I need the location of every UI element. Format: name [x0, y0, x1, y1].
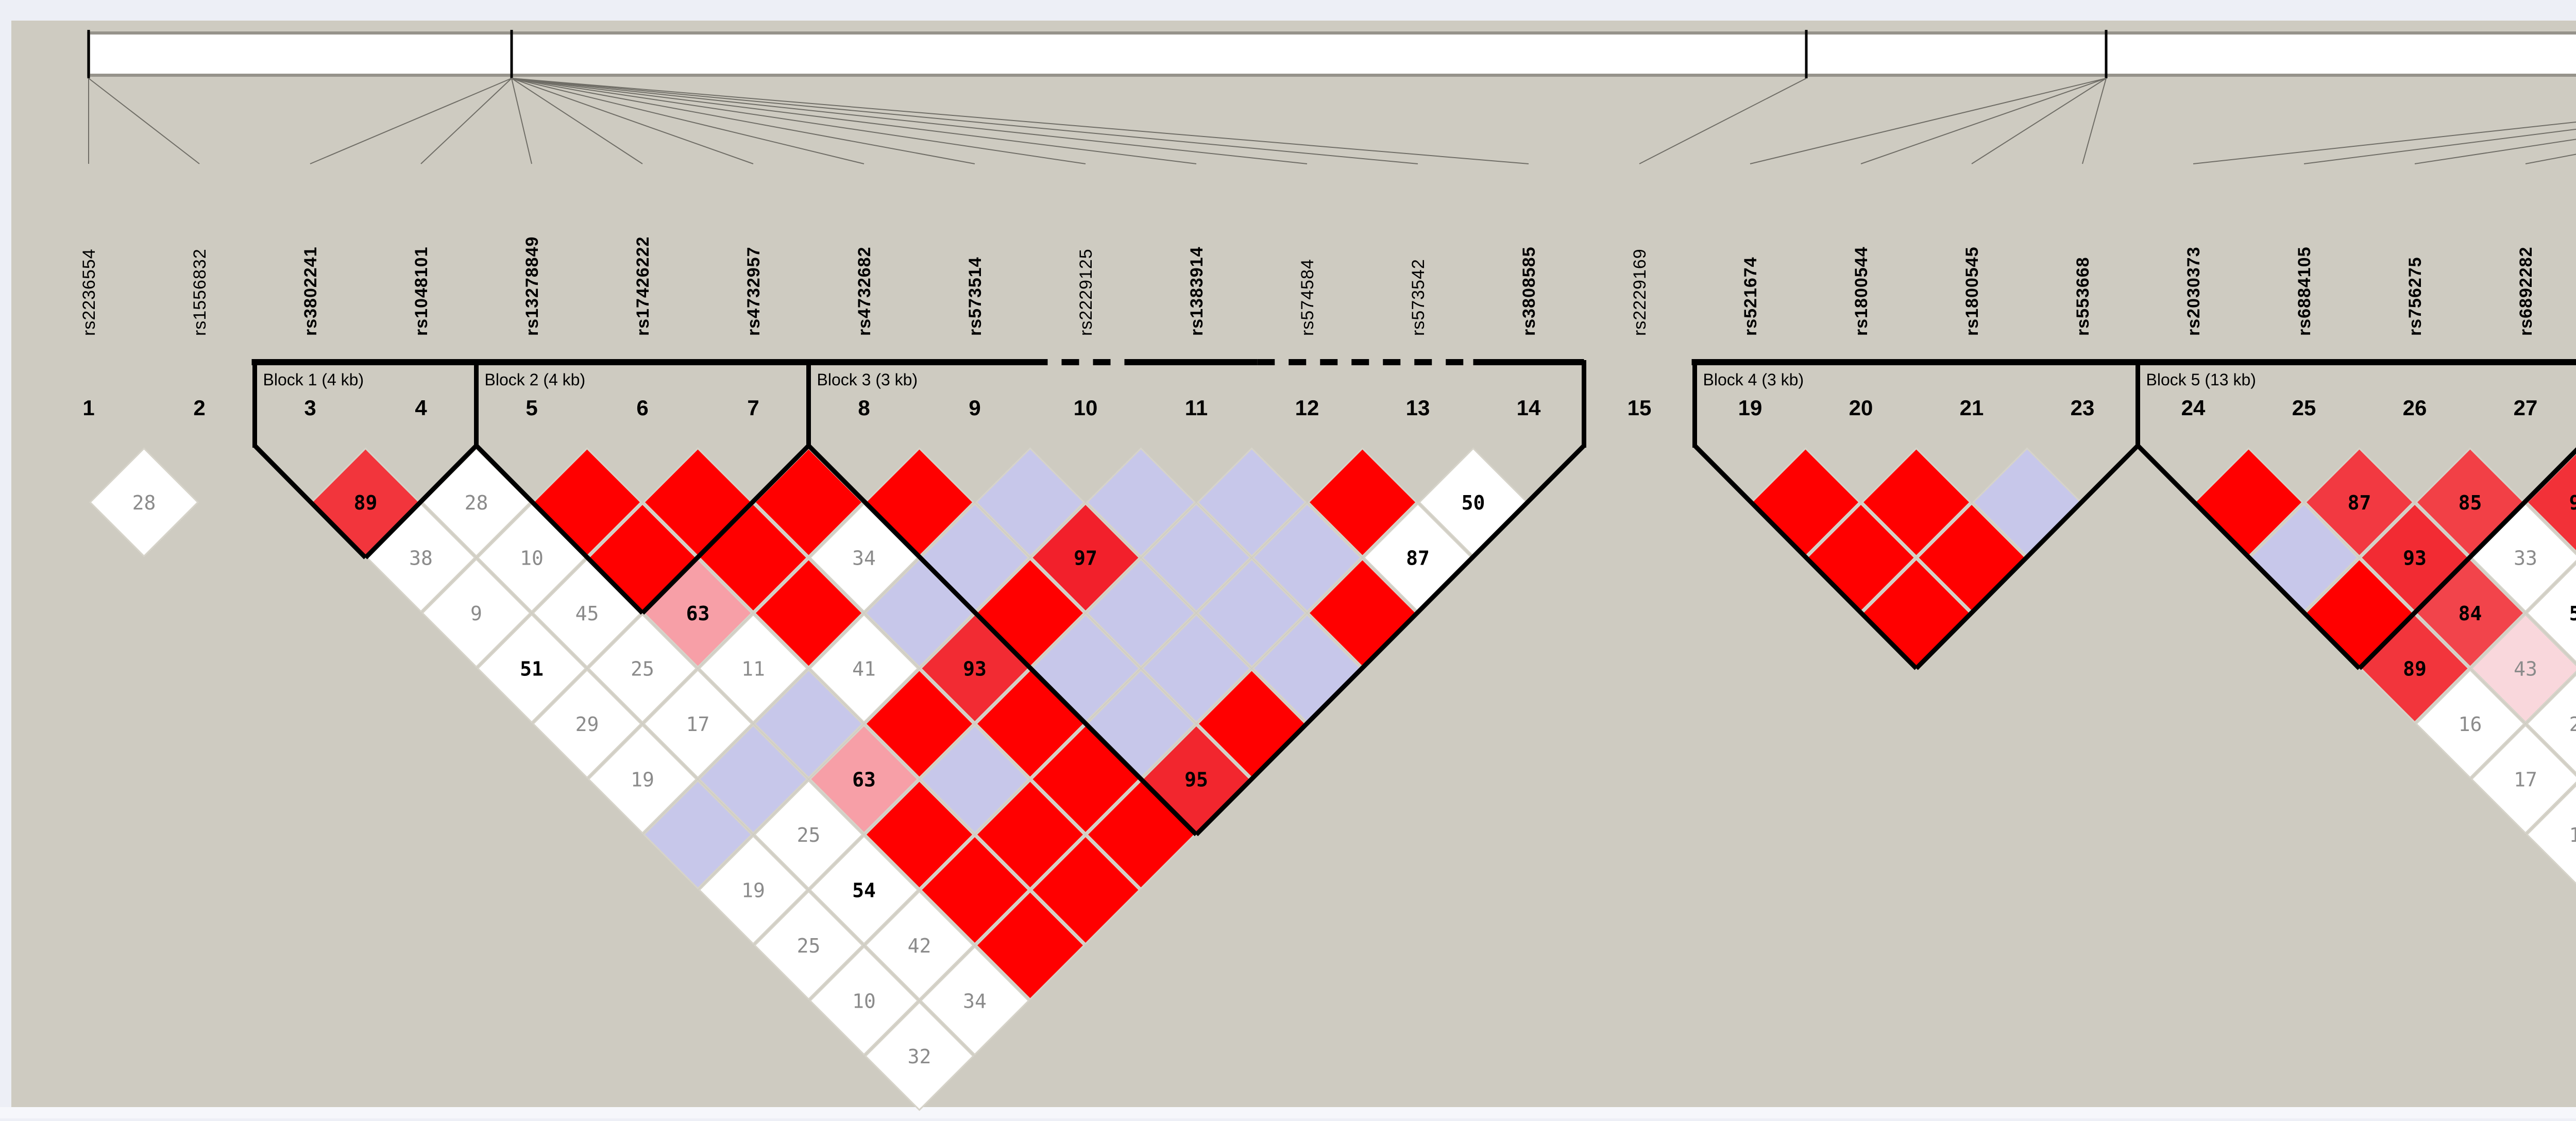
ld-cell-value: 16 [2459, 713, 2482, 736]
marker-number: 14 [1517, 396, 1541, 420]
ld-cell-value: 25 [797, 824, 821, 846]
marker-number: 21 [1960, 396, 1984, 420]
block-top-border [473, 359, 812, 365]
window-frame-top [0, 0, 2576, 21]
ld-cell-value: 28 [465, 491, 488, 514]
block-top-border [252, 359, 480, 365]
ld-cell-value: 17 [686, 713, 710, 736]
ld-plot: rs22365541rs15568322rs38022413rs10481014… [0, 0, 2576, 1118]
ld-cell-value: 50 [1462, 491, 1485, 514]
marker-rs-label: rs553668 [2073, 257, 2093, 336]
marker-number: 12 [1295, 396, 1319, 420]
marker-rs-label: rs2229125 [1076, 248, 1096, 336]
marker-rs-label: rs6884105 [2295, 246, 2314, 336]
block-label[interactable]: Block 3 (3 kb) [817, 370, 918, 389]
marker-number: 27 [2514, 396, 2538, 420]
marker-number: 5 [526, 396, 537, 420]
marker-number: 23 [2071, 396, 2095, 420]
ld-cell-value: 29 [575, 713, 599, 736]
ld-cell-value: 41 [852, 658, 876, 681]
ld-cell-value: 10 [852, 990, 876, 1013]
marker-number: 10 [1074, 396, 1098, 420]
marker-rs-label: rs17426222 [633, 236, 653, 336]
marker-number: 8 [858, 396, 870, 420]
block-label[interactable]: Block 4 (3 kb) [1703, 370, 1804, 389]
ld-cell-value: 9 [470, 602, 482, 625]
ld-cell-value: 38 [409, 547, 433, 570]
marker-number: 3 [304, 396, 316, 420]
marker-number: 1 [82, 396, 94, 420]
marker-rs-label: rs573542 [1409, 259, 1428, 336]
ld-cell-value: 89 [2403, 658, 2427, 681]
ld-cell-value: 87 [2348, 491, 2371, 514]
ld-cell-value: 28 [132, 491, 156, 514]
ld-cell-value: 25 [797, 935, 821, 957]
marker-rs-label: rs6892282 [2516, 246, 2536, 336]
block-label[interactable]: Block 5 (13 kb) [2146, 370, 2256, 389]
ld-cell-value: 63 [852, 769, 876, 791]
ld-cell-value: 43 [2514, 658, 2537, 681]
ld-cell-value: 34 [852, 547, 876, 570]
marker-rs-label: rs521674 [1741, 257, 1760, 336]
marker-rs-label: rs4732682 [855, 246, 874, 336]
window-frame-left [0, 0, 11, 1118]
ld-cell-value: 25 [631, 658, 654, 681]
marker-rs-label: rs3808585 [1519, 246, 1539, 336]
marker-rs-label: rs2030373 [2184, 246, 2204, 336]
marker-rs-label: rs1800544 [1852, 246, 1871, 336]
ld-cell-value: 85 [2459, 491, 2482, 514]
ld-cell-value: 42 [908, 935, 931, 957]
ld-cell-value: 51 [520, 658, 544, 681]
marker-rs-label: rs573514 [965, 257, 985, 336]
ld-cell-value: 93 [963, 658, 987, 681]
marker-number: 6 [636, 396, 648, 420]
ld-cell-value: 54 [852, 879, 876, 902]
marker-rs-label: rs2236554 [79, 248, 99, 336]
block-top-border [2135, 359, 2576, 365]
marker-rs-label: rs1556832 [190, 248, 210, 336]
marker-rs-label: rs756275 [2405, 257, 2425, 336]
ld-cell-value: 93 [2403, 547, 2427, 570]
ld-cell-value: 10 [520, 547, 544, 570]
ld-cell-value: 63 [686, 602, 710, 625]
ld-cell-value: 19 [741, 879, 765, 902]
ld-cell-value: 33 [2514, 547, 2537, 570]
ld-cell-value: 89 [354, 491, 378, 514]
marker-number: 7 [747, 396, 759, 420]
marker-number: 2 [193, 396, 205, 420]
marker-number: 4 [415, 396, 427, 420]
ld-cell-value: 45 [575, 602, 599, 625]
block-top-border [1692, 359, 2141, 365]
marker-number: 15 [1628, 396, 1652, 420]
marker-rs-label: rs1048101 [412, 246, 431, 336]
marker-number: 9 [969, 396, 980, 420]
ld-cell-value: 11 [741, 658, 765, 681]
ld-cell-value: 84 [2459, 602, 2482, 625]
ld-cell-value: 29 [2569, 713, 2576, 736]
marker-rs-label: rs2229169 [1630, 248, 1650, 336]
ld-plot-window: rs22365541rs15568322rs38022413rs10481014… [0, 0, 2576, 1118]
ld-cell-value: 34 [963, 990, 987, 1013]
ld-cell-value: 19 [631, 769, 654, 791]
ld-cell-value: 55 [2569, 602, 2576, 625]
marker-number: 13 [1406, 396, 1430, 420]
ld-cell-value: 19 [2569, 824, 2576, 846]
ld-cell-value: 17 [2514, 769, 2537, 791]
ld-cell-value: 90 [2569, 491, 2576, 514]
marker-rs-label: rs3802241 [301, 246, 320, 336]
marker-number: 25 [2292, 396, 2316, 420]
ld-cell-value: 95 [1184, 769, 1208, 791]
block-label[interactable]: Block 2 (4 kb) [485, 370, 586, 389]
genome-ruler-bar [89, 33, 2576, 75]
marker-rs-label: rs1800545 [1962, 246, 1982, 336]
marker-number: 19 [1738, 396, 1762, 420]
marker-rs-label: rs574584 [1298, 259, 1317, 336]
marker-rs-label: rs4732957 [744, 246, 764, 336]
marker-number: 26 [2403, 396, 2427, 420]
ld-cell-value: 87 [1406, 547, 1430, 570]
ld-cell-value: 32 [908, 1045, 931, 1068]
marker-rs-label: rs1383914 [1187, 246, 1207, 336]
marker-number: 20 [1849, 396, 1873, 420]
window-frame-bottom [0, 1107, 2576, 1118]
marker-rs-label: rs13278849 [522, 236, 542, 336]
ld-cell-value: 97 [1074, 547, 1097, 570]
marker-number: 11 [1185, 396, 1208, 420]
block-label[interactable]: Block 1 (4 kb) [263, 370, 364, 389]
marker-number: 24 [2181, 396, 2206, 420]
